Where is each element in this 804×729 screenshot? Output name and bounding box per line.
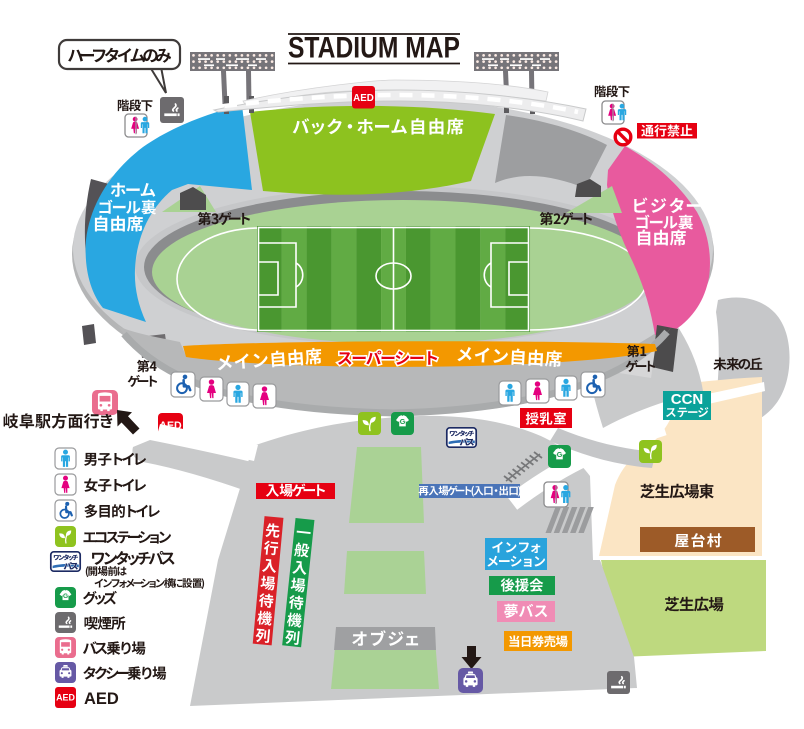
svg-text:G: G <box>63 593 68 600</box>
svg-text:AED: AED <box>353 93 374 104</box>
svg-text:G: G <box>400 418 406 426</box>
svg-text:AED: AED <box>84 690 119 708</box>
svg-text:STADIUM MAP: STADIUM MAP <box>288 32 460 65</box>
svg-text:CCN: CCN <box>671 391 704 408</box>
svg-text:G: G <box>557 451 563 459</box>
svg-text:AED: AED <box>56 693 75 703</box>
